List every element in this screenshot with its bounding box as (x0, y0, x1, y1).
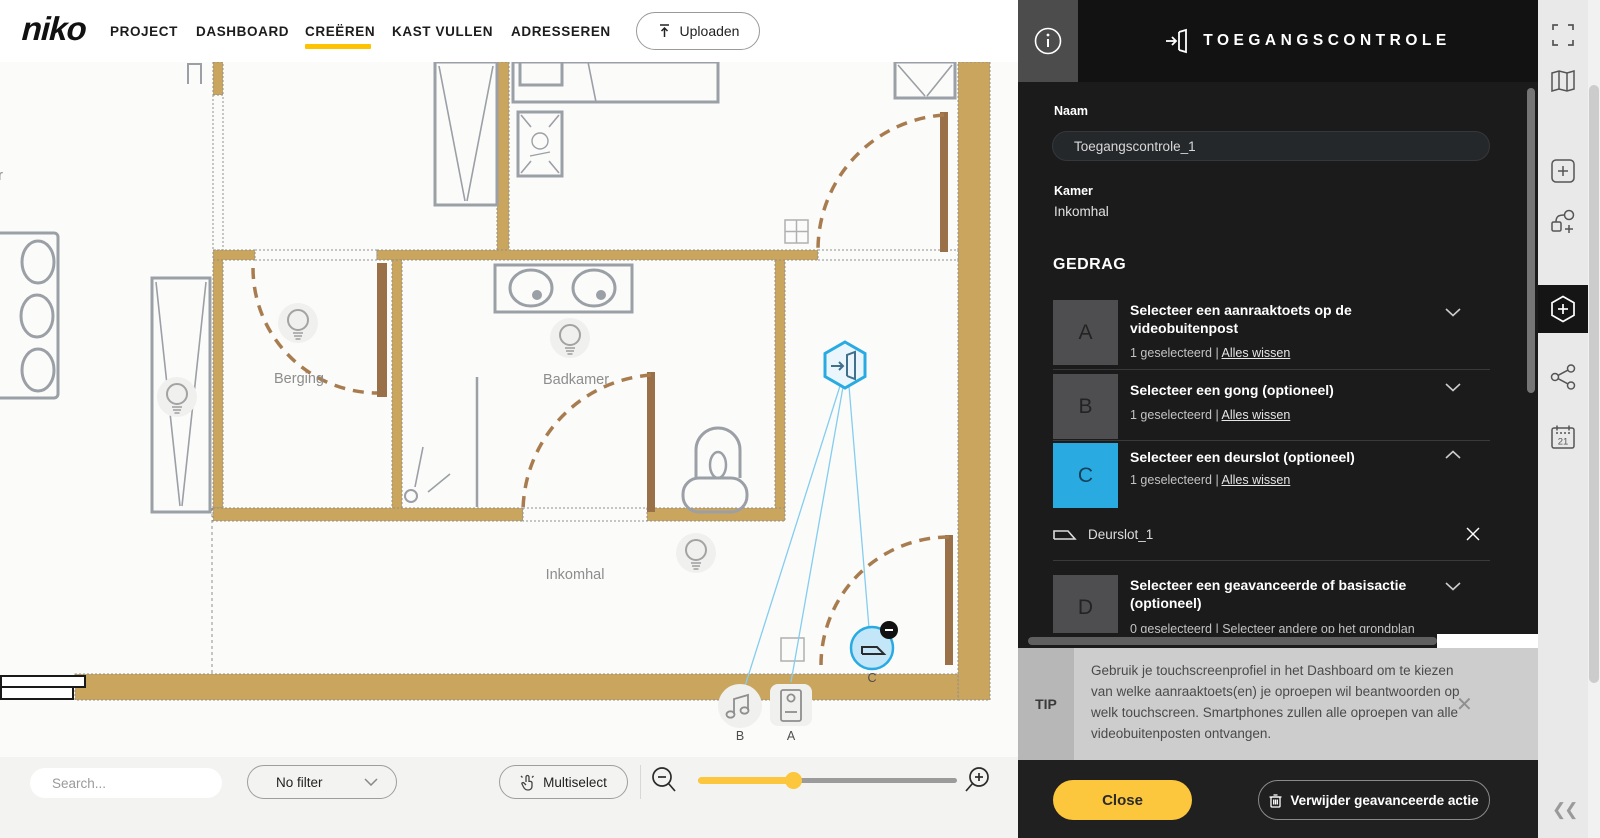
divider (1053, 560, 1490, 561)
add-control-hexagon-icon[interactable] (1538, 285, 1588, 333)
page-scrollbar-thumb[interactable] (1589, 85, 1599, 683)
access-control-device-icon[interactable] (825, 342, 865, 388)
gedrag-item-c-sub: 1 geselecteerd | Alles wissen (1130, 473, 1290, 487)
gedrag-heading: GEDRAG (1053, 256, 1126, 274)
gedrag-item-d-title: Selecteer een geavanceerde of basisactie… (1130, 576, 1450, 612)
zoom-slider-thumb[interactable] (785, 772, 802, 789)
search-input[interactable] (30, 768, 222, 798)
naam-input[interactable] (1052, 131, 1490, 161)
close-icon[interactable] (1466, 527, 1480, 541)
delete-advanced-action-button[interactable]: Verwijder geavanceerde actie (1258, 780, 1490, 820)
divider (1053, 440, 1490, 441)
gedrag-item-c-square[interactable]: C (1053, 443, 1118, 508)
trash-icon (1269, 793, 1282, 808)
gedrag-item-b-sub: 1 geselecteerd | Alles wissen (1130, 408, 1290, 422)
gedrag-item-d-sub: 0 geselecteerd | Selecteer andere op het… (1130, 622, 1415, 633)
light-icons[interactable] (157, 303, 716, 573)
panel-title: TOEGANGSCONTROLE (1203, 32, 1450, 50)
gedrag-item-b-title: Selecteer een gong (optioneel) (1130, 381, 1450, 399)
add-square-icon[interactable] (1538, 148, 1588, 194)
device-label-a: A (787, 729, 796, 743)
add-connection-icon[interactable] (1538, 199, 1588, 245)
tip-close-icon[interactable]: ✕ (1456, 692, 1473, 717)
chevron-up-icon[interactable] (1445, 450, 1461, 459)
naam-label: Naam (1054, 104, 1088, 118)
gedrag-item-a-sub: 1 geselecteerd | Alles wissen (1130, 346, 1290, 360)
door-enter-icon (1165, 28, 1189, 54)
top-header: niko PROJECT DASHBOARD CREËREN KAST VULL… (0, 0, 1018, 62)
upload-icon (657, 23, 672, 39)
gedrag-item-c-title: Selecteer een deurslot (optioneel) (1130, 448, 1450, 466)
divider (1053, 369, 1490, 370)
device-label-c: C (867, 671, 876, 685)
map-icon[interactable] (1538, 58, 1588, 104)
alles-wissen-link-b[interactable]: Alles wissen (1222, 408, 1291, 422)
nav-creeren[interactable]: CREËREN (305, 24, 375, 39)
floorplan-svg: Berging Badkamer Inkomhal er (0, 62, 1018, 757)
deurslot-child-label: Deurslot_1 (1088, 527, 1153, 542)
furniture (0, 62, 955, 661)
filter-dropdown[interactable]: No filter (247, 765, 397, 799)
zoom-slider-fill (698, 777, 793, 784)
gedrag-item-b-square[interactable]: B (1053, 374, 1118, 439)
info-button[interactable] (1018, 0, 1078, 82)
vertical-scrollbar-thumb[interactable] (1527, 88, 1535, 393)
calendar-21-icon[interactable]: 21 (1538, 414, 1588, 460)
horizontal-scrollbar-thumb[interactable] (1028, 637, 1437, 645)
tap-hand-icon (520, 774, 535, 791)
floorplan-canvas[interactable]: Berging Badkamer Inkomhal er (0, 62, 1018, 757)
info-icon (1034, 27, 1062, 55)
zoom-in-button[interactable] (965, 764, 993, 798)
nav-project[interactable]: PROJECT (110, 24, 178, 39)
nav-adresseren[interactable]: ADRESSEREN (511, 24, 611, 39)
chevron-down-icon (364, 778, 378, 786)
alles-wissen-link-c[interactable]: Alles wissen (1222, 473, 1291, 487)
chevron-down-icon[interactable] (1445, 383, 1461, 392)
device-label-b: B (736, 729, 744, 743)
kamer-label: Kamer (1054, 184, 1093, 198)
gedrag-item-a-title: Selecteer een aanraaktoets op de videobu… (1130, 301, 1450, 337)
upload-button[interactable]: Uploaden (636, 12, 760, 50)
videobuitenpost-device-icon[interactable] (770, 684, 812, 726)
nav-active-underline (305, 44, 371, 49)
nav-kast-vullen[interactable]: KAST VULLEN (392, 24, 493, 39)
deurslot-device-icon[interactable] (851, 621, 898, 669)
deurslot-icon (1053, 527, 1077, 541)
room-label-inkomhal: Inkomhal (546, 567, 605, 583)
chevron-down-icon[interactable] (1445, 308, 1461, 317)
niko-logo: niko (21, 10, 87, 48)
zoom-out-button[interactable] (650, 765, 676, 797)
tip-label: TIP (1018, 648, 1074, 760)
device-links (745, 386, 869, 686)
room-label-partial: er (0, 168, 3, 184)
multiselect-button[interactable]: Multiselect (499, 765, 628, 799)
close-button[interactable]: Close (1053, 780, 1192, 820)
network-icon[interactable] (1538, 354, 1588, 400)
collapse-icon[interactable]: ❮❮ (1552, 800, 1577, 820)
horizontal-scrollbar-track[interactable] (1437, 634, 1538, 648)
gedrag-item-d-square[interactable]: D (1053, 575, 1118, 633)
panel-footer: Close Verwijder geavanceerde actie (1018, 760, 1538, 838)
canvas-toolbar: No filter Multiselect (0, 757, 1018, 838)
gong-device-icon[interactable] (718, 684, 762, 728)
svg-text:21: 21 (1558, 437, 1569, 448)
tip-text: Gebruik je touchscreenprofiel in het Das… (1074, 648, 1514, 760)
alles-wissen-link-a[interactable]: Alles wissen (1222, 346, 1291, 360)
panel-header: TOEGANGSCONTROLE (1078, 0, 1538, 82)
stairs (1, 676, 85, 699)
chevron-down-icon[interactable] (1445, 582, 1461, 591)
toolbar-divider (640, 765, 641, 799)
room-label-badkamer: Badkamer (543, 372, 609, 388)
room-label-berging: Berging (274, 371, 324, 387)
fullscreen-icon[interactable] (1538, 12, 1588, 58)
gedrag-item-a-square[interactable]: A (1053, 300, 1118, 365)
nav-dashboard[interactable]: DASHBOARD (196, 24, 289, 39)
gedrag-item-d-row: D Selecteer een geavanceerde of basisact… (1053, 570, 1490, 633)
kamer-value: Inkomhal (1054, 204, 1109, 219)
